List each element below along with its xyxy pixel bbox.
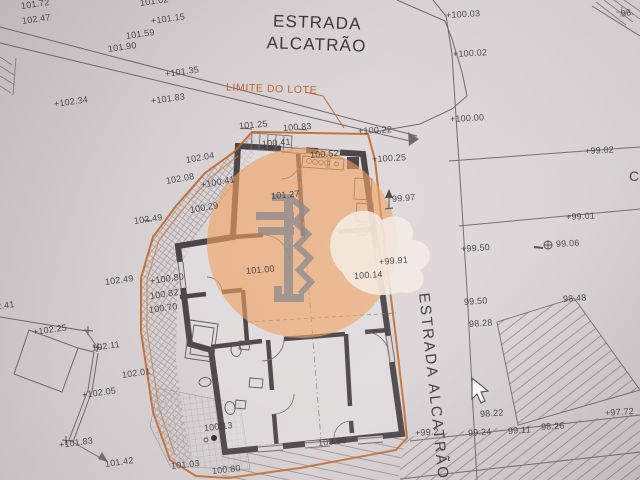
elevation-label: 101.03 bbox=[170, 458, 200, 471]
elevation-label: 101.25 bbox=[239, 119, 268, 131]
elevation-label: +97.72 bbox=[605, 406, 635, 418]
elevation-label: +100.03 bbox=[446, 8, 481, 20]
elevation-label: +99.01 bbox=[566, 210, 595, 222]
elevation-label: 100.41 bbox=[262, 137, 291, 149]
elevation-label: 101.72 bbox=[20, 0, 50, 11]
elevation-label: 102.49 bbox=[133, 212, 163, 226]
elevation-label: +101.15 bbox=[150, 11, 185, 26]
elevation-label: 100.80 bbox=[317, 435, 347, 448]
elevation-label: +100.00 bbox=[450, 112, 485, 124]
elevation-label: 101.00 bbox=[246, 264, 275, 276]
elevation-label: 100.70 bbox=[148, 301, 178, 315]
elevation-label: +100.02 bbox=[453, 47, 488, 59]
elevation-label: 98.48 bbox=[563, 292, 587, 304]
elevation-label: 101.42 bbox=[104, 455, 134, 469]
elevation-label: +99.02 bbox=[585, 144, 614, 156]
site-plan-photo: ESTRADA ALCATRÃO LIMITE DO LOTE ESTRADA … bbox=[0, 0, 640, 480]
elevation-label: 102.41 bbox=[0, 299, 15, 313]
elevation-label: 102.49 bbox=[104, 273, 134, 287]
elevation-label: +101.83 bbox=[150, 91, 185, 106]
elevation-label: +99.50 bbox=[461, 242, 491, 254]
elevation-label: +100.22 bbox=[358, 124, 393, 136]
elevation-label: 100.52 bbox=[310, 148, 339, 160]
elevation-label: +100.41 bbox=[200, 174, 235, 190]
elevation-label: 99.50 bbox=[464, 295, 488, 307]
elevation-label: 99.97 bbox=[392, 192, 416, 204]
elevation-label: +102.05 bbox=[81, 385, 116, 400]
elevation-label: +99.2 bbox=[415, 426, 439, 438]
elevation-label: +102.34 bbox=[53, 94, 88, 109]
elevation-label: +100.25 bbox=[372, 152, 407, 164]
elevation-label: 102.11 bbox=[91, 339, 120, 353]
elevation-label: 99.24 bbox=[468, 426, 492, 438]
elevation-label: 100.13 bbox=[203, 420, 233, 433]
elevation-labels-layer: 101.72102.47101.02+101.15101.59101.90+10… bbox=[0, 0, 640, 480]
elevation-label: 98. bbox=[620, 6, 635, 19]
elevation-label: 102.08 bbox=[165, 171, 195, 186]
elevation-label: +100.80 bbox=[149, 271, 184, 286]
elevation-label: 102.04 bbox=[185, 150, 215, 165]
elevation-label: 100.14 bbox=[354, 269, 383, 281]
elevation-label: 101.59 bbox=[125, 27, 155, 41]
elevation-label: +102.25 bbox=[32, 322, 67, 337]
elevation-label: C bbox=[629, 168, 639, 184]
elevation-label: 101.27 bbox=[271, 189, 300, 201]
elevation-label: +99.91 bbox=[379, 254, 409, 266]
elevation-label: 100.83 bbox=[283, 121, 312, 133]
elevation-label: 101.02 bbox=[139, 0, 169, 8]
elevation-label: +101.35 bbox=[164, 64, 199, 79]
elevation-label: 100.29 bbox=[189, 200, 219, 215]
elevation-label: 100.80 bbox=[211, 463, 241, 476]
elevation-label: 102.01 bbox=[121, 366, 151, 380]
elevation-label: 98.22 bbox=[480, 407, 504, 419]
elevation-label: 100.82 bbox=[149, 287, 179, 301]
elevation-label: 101.90 bbox=[107, 40, 137, 54]
elevation-label: 98.28 bbox=[469, 317, 493, 329]
elevation-label: 102.47 bbox=[21, 12, 51, 26]
elevation-label: 99.06 bbox=[556, 238, 580, 249]
elevation-label: +101.83 bbox=[58, 435, 93, 450]
elevation-label: 99.11 bbox=[508, 424, 532, 436]
elevation-label: 98.26 bbox=[541, 420, 565, 432]
